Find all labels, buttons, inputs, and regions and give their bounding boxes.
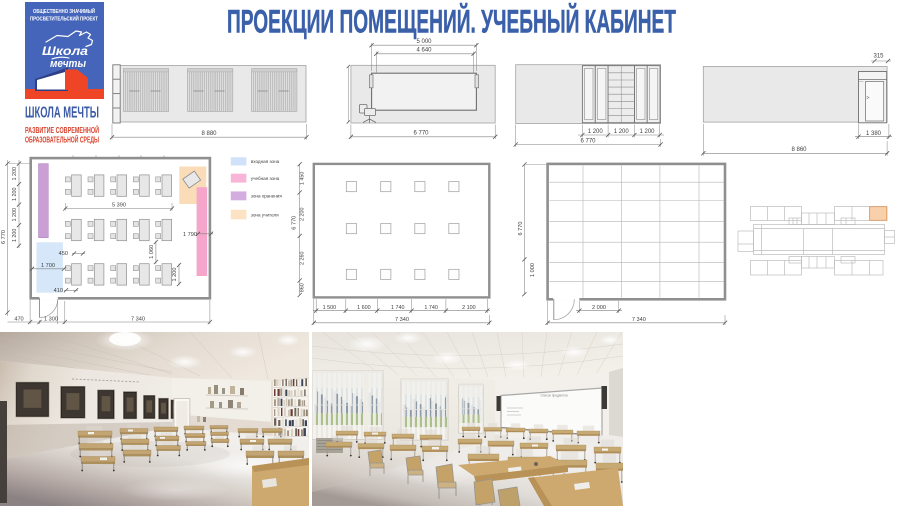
svg-text:1 000: 1 000 — [530, 263, 536, 277]
svg-text:5 390: 5 390 — [112, 202, 126, 208]
svg-text:7 340: 7 340 — [131, 317, 145, 323]
svg-text:1 500: 1 500 — [323, 305, 337, 311]
svg-text:860: 860 — [300, 283, 306, 292]
svg-text:1 790: 1 790 — [183, 232, 197, 238]
svg-text:1 200: 1 200 — [614, 129, 630, 135]
svg-text:2 100: 2 100 — [462, 305, 476, 311]
svg-text:1 700: 1 700 — [41, 263, 55, 269]
svg-text:1 200: 1 200 — [639, 129, 655, 135]
svg-text:Список предметов: Список предметов — [540, 394, 568, 398]
svg-text:2 000: 2 000 — [592, 305, 606, 311]
svg-text:зона учителя: зона учителя — [251, 213, 279, 218]
svg-text:учебная зона: учебная зона — [251, 176, 280, 181]
svg-text:зона хранения: зона хранения — [251, 194, 283, 199]
svg-text:1 200: 1 200 — [12, 188, 18, 202]
svg-text:1 740: 1 740 — [424, 305, 438, 311]
svg-text:450: 450 — [59, 251, 68, 257]
svg-text:2 200: 2 200 — [300, 207, 306, 221]
svg-text:1 600: 1 600 — [357, 305, 371, 311]
svg-text:6 770: 6 770 — [413, 131, 429, 137]
svg-text:5 000: 5 000 — [416, 39, 432, 45]
svg-text:7 340: 7 340 — [632, 317, 646, 323]
svg-text:входная зона: входная зона — [251, 159, 280, 164]
svg-text:1 200: 1 200 — [172, 268, 178, 282]
svg-text:6 770: 6 770 — [1, 230, 7, 244]
svg-text:2 260: 2 260 — [300, 251, 306, 265]
svg-text:410: 410 — [54, 288, 63, 294]
svg-text:1 200: 1 200 — [12, 167, 18, 181]
svg-text:1 200: 1 200 — [588, 129, 604, 135]
svg-text:6 770: 6 770 — [580, 138, 596, 144]
svg-text:7 340: 7 340 — [395, 317, 409, 323]
svg-text:470: 470 — [14, 317, 23, 323]
svg-text:8 880: 8 880 — [201, 131, 217, 137]
svg-text:6 770: 6 770 — [518, 222, 524, 236]
svg-text:4 640: 4 640 — [416, 48, 432, 54]
svg-text:1 740: 1 740 — [391, 305, 405, 311]
svg-text:6 770: 6 770 — [292, 216, 298, 230]
svg-text:8 860: 8 860 — [791, 147, 807, 153]
svg-text:ПРОЕКЦИИ ПОМЕЩЕНИЙ. УЧЕБНЫЙ КА: ПРОЕКЦИИ ПОМЕЩЕНИЙ. УЧЕБНЫЙ КАБИНЕТ — [227, 4, 676, 40]
svg-text:1 200: 1 200 — [12, 208, 18, 222]
svg-text:1 380: 1 380 — [866, 131, 882, 137]
svg-text:1 060: 1 060 — [149, 245, 155, 259]
svg-text:1 200: 1 200 — [12, 229, 18, 243]
svg-text:1 300: 1 300 — [44, 317, 58, 323]
svg-text:1 450: 1 450 — [300, 172, 306, 186]
svg-text:315: 315 — [873, 54, 884, 60]
